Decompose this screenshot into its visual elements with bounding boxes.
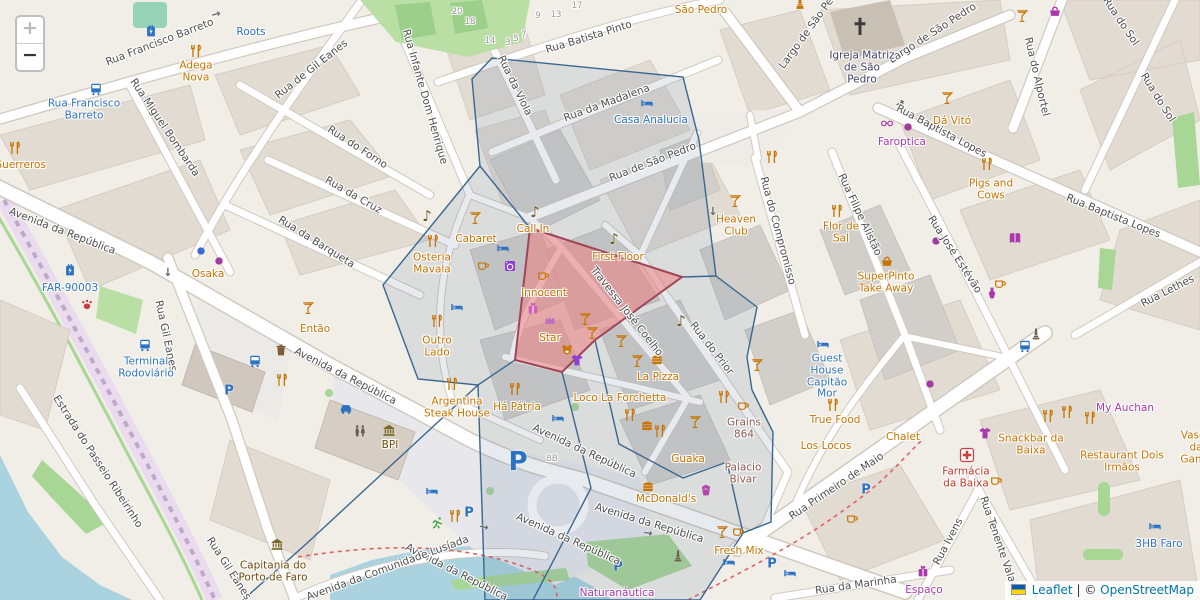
ukraine-flag-icon: [1011, 584, 1026, 595]
leaflet-link[interactable]: Leaflet: [1032, 583, 1073, 597]
osm-link[interactable]: OpenStreetMap: [1100, 583, 1194, 597]
map-canvas[interactable]: PPPPPP♪♪♪♪→→→→→→ Rua Francisco BarretoRu…: [0, 0, 1200, 600]
attribution-separator: |: [1076, 583, 1080, 597]
zone-edge: [682, 276, 716, 277]
copyright-symbol: ©: [1084, 583, 1096, 597]
zoom-control: + −: [15, 15, 45, 72]
zoom-in-button[interactable]: +: [17, 17, 43, 44]
base-map: [0, 0, 1200, 600]
zoom-out-button[interactable]: −: [17, 44, 43, 70]
attribution-bar: Leaflet | © OpenStreetMap: [1005, 581, 1200, 600]
